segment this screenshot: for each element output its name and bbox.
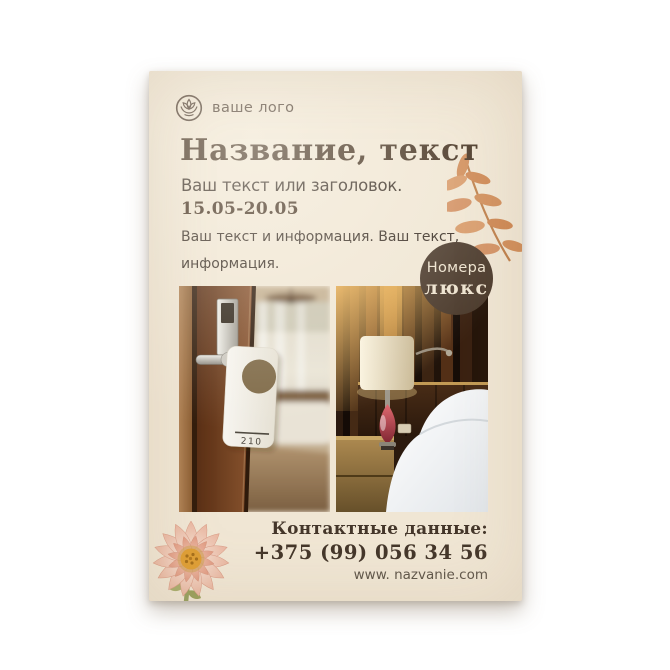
contacts-website: www. nazvanie.com <box>254 566 488 585</box>
hotel-bedroom-photo <box>336 286 488 512</box>
flyer-subtitle: Ваш текст или заголовок. <box>181 176 402 195</box>
hotel-door-photo: 210 <box>179 286 330 512</box>
body-text-line2: информация. <box>181 251 459 278</box>
door-hanger-tag: 210 <box>222 346 282 453</box>
contacts-label: Контактные данные: <box>254 518 488 540</box>
contacts-phone: +375 (99) 056 34 56 <box>254 540 488 565</box>
luxury-rooms-badge: Номера люкс <box>420 242 493 315</box>
date-range: 15.05-20.05 <box>181 199 299 219</box>
body-text: Ваш текст и информация. Ваш текст, инфор… <box>181 224 459 278</box>
lotus-logo-icon <box>175 94 203 122</box>
photo-row: 210 <box>179 286 488 512</box>
contacts-block: Контактные данные: +375 (99) 056 34 56 w… <box>254 518 488 585</box>
logo: ваше лого <box>175 94 294 122</box>
badge-line1: Номера <box>427 259 487 277</box>
door-jamb <box>179 286 192 512</box>
wall-outlet <box>398 424 411 433</box>
flyer-title: Название, текст <box>180 133 480 168</box>
logo-text: ваше лого <box>212 100 294 116</box>
badge-line2: люкс <box>424 277 488 299</box>
body-text-line1: Ваш текст и информация. Ваш текст, <box>181 224 459 251</box>
room-number-tag-text: 210 <box>240 437 262 448</box>
hotel-flyer: ваше лого Название, текст Ваш текст или … <box>149 71 522 601</box>
dahlia-flower-decoration <box>149 507 239 601</box>
